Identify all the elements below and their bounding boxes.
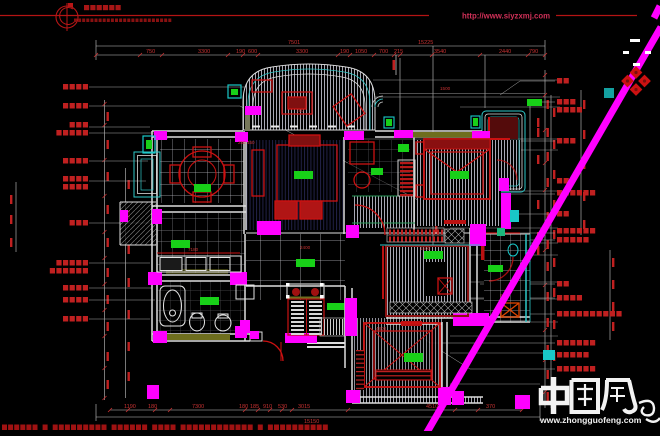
- svg-text:3300: 3300: [296, 49, 308, 55]
- svg-text:190: 190: [236, 49, 245, 55]
- svg-text:15225: 15225: [418, 40, 433, 46]
- svg-text:2400: 2400: [300, 245, 311, 250]
- svg-text:7300: 7300: [192, 404, 204, 410]
- svg-text:185: 185: [250, 404, 259, 410]
- svg-text:910: 910: [263, 404, 272, 410]
- svg-text:3015: 3015: [298, 404, 310, 410]
- svg-text:1500: 1500: [440, 86, 451, 91]
- svg-text:4800: 4800: [376, 326, 387, 331]
- svg-text:215: 215: [394, 49, 403, 55]
- svg-text:2440: 2440: [499, 49, 511, 55]
- svg-text:180: 180: [239, 404, 248, 410]
- svg-text:3300: 3300: [198, 49, 210, 55]
- svg-text:http://www.siyzxmj.com: http://www.siyzxmj.com: [462, 12, 550, 21]
- svg-text:1050: 1050: [355, 49, 367, 55]
- svg-text:250 450: 250 450: [238, 140, 255, 145]
- svg-text:700: 700: [379, 49, 388, 55]
- svg-text:7501: 7501: [288, 40, 300, 46]
- svg-text:1190: 1190: [124, 404, 136, 410]
- svg-text:790: 790: [529, 49, 538, 55]
- svg-text:600: 600: [248, 49, 257, 55]
- svg-text:190: 190: [340, 49, 349, 55]
- svg-text:www.zhongguofeng.com: www.zhongguofeng.com: [539, 415, 642, 425]
- svg-text:750: 750: [146, 49, 155, 55]
- svg-text:3540: 3540: [434, 49, 446, 55]
- svg-text:1500: 1500: [420, 246, 431, 251]
- svg-text:180: 180: [148, 404, 157, 410]
- svg-text:7180: 7180: [188, 247, 199, 252]
- svg-text:15150: 15150: [304, 419, 319, 425]
- svg-text:370: 370: [486, 404, 495, 410]
- svg-text:530: 530: [278, 404, 287, 410]
- svg-text:780: 780: [296, 108, 304, 113]
